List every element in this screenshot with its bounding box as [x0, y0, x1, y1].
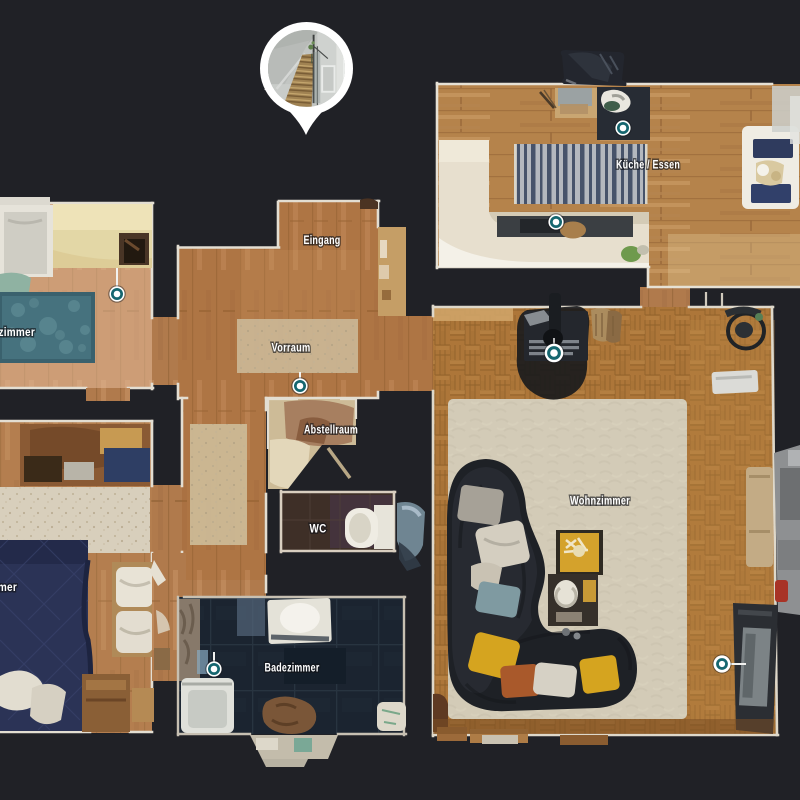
svg-text:Vorraum: Vorraum — [272, 341, 311, 355]
svg-text:Küche / Essen: Küche / Essen — [616, 158, 680, 172]
svg-text:WC: WC — [310, 522, 327, 536]
svg-text:Schlafzimmer: Schlafzimmer — [0, 325, 35, 339]
svg-text:Badezimmer: Badezimmer — [265, 661, 320, 675]
svg-text:Eingang: Eingang — [304, 233, 341, 247]
svg-text:Abstellraum: Abstellraum — [304, 423, 358, 437]
svg-text:Wohnzimmer: Wohnzimmer — [570, 494, 630, 508]
svg-text:Schlafzimmer: Schlafzimmer — [0, 580, 17, 594]
